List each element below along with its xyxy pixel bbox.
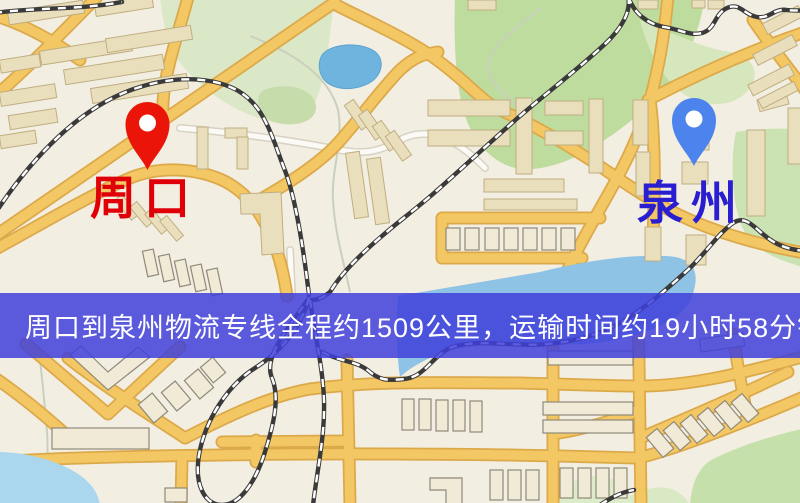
pond	[319, 45, 381, 89]
origin-label: 周口	[90, 176, 198, 222]
info-banner: 周口到泉州物流专线全程约1509公里，运输时间约19小时58分钟.	[0, 293, 800, 358]
destination-pin[interactable]	[672, 98, 716, 166]
origin-pin-hole	[139, 115, 156, 132]
destination-label: 泉州	[637, 181, 745, 227]
destination-pin-icon	[672, 98, 716, 166]
map-canvas: 周口 泉州 周口到泉州物流专线全程约1509公里，运输时间约19小时58分钟.	[0, 0, 800, 503]
map-image	[0, 0, 800, 503]
origin-pin[interactable]	[126, 102, 170, 170]
banner-text: 周口到泉州物流专线全程约1509公里，运输时间约19小时58分钟.	[25, 306, 800, 345]
origin-pin-icon	[126, 102, 170, 170]
destination-pin-hole	[686, 111, 703, 128]
